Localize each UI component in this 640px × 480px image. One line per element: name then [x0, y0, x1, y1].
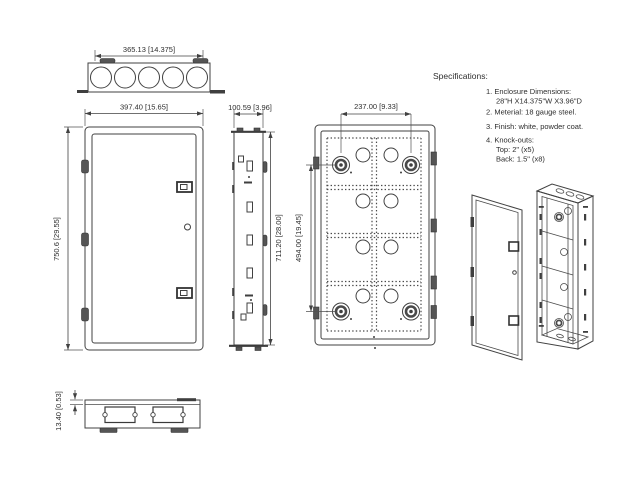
- spec-item-4: 4. Knock-outs:: [486, 136, 534, 145]
- latch: [509, 316, 519, 325]
- side-view: 100.59 [3.96] 711.20 [28.00]: [228, 103, 283, 351]
- hinge-knuckle: [263, 305, 267, 316]
- door-panel: [92, 134, 196, 343]
- hinge-knuckle: [263, 162, 267, 173]
- front-view: 397.40 [15.65] 750.6 [29.55]: [52, 103, 203, 351]
- dim-side-width: 100.59 [3.96]: [228, 103, 272, 112]
- mounting-tab: [193, 59, 208, 64]
- latch: [509, 242, 519, 251]
- spec-item-4c: Back: 1.5" (x8): [496, 155, 545, 164]
- hinge: [82, 308, 89, 321]
- ringed-knockout: [555, 319, 564, 328]
- top-view: 365.13 [14.375]: [77, 45, 225, 94]
- knockout-circle: [115, 67, 136, 88]
- spec-item-1: 1. Enclosure Dimensions:: [486, 87, 571, 96]
- hinge-tab: [431, 276, 437, 289]
- latch: [177, 182, 192, 192]
- dim-side-height: 711.20 [28.00]: [274, 214, 283, 261]
- dim-front-width: 397.40 [15.65]: [120, 103, 168, 112]
- spec-item-2: 2. Meterial: 18 gauge steel.: [486, 108, 576, 117]
- hinge: [471, 267, 475, 277]
- bottom-view: 13.40 [0.53]: [54, 390, 200, 433]
- knockout-circle: [139, 67, 160, 88]
- knockout-circle: [91, 67, 112, 88]
- specifications: Specifications: 1. Enclosure Dimensions:…: [433, 71, 583, 164]
- hinge-tab: [431, 306, 437, 319]
- spec-item-3: 3. Finish: white, powder coat.: [486, 122, 583, 131]
- ringed-knockout: [333, 157, 350, 174]
- hinge-knuckle: [263, 235, 267, 246]
- hinge: [471, 217, 475, 227]
- iso-door: [471, 195, 523, 360]
- ringed-knockout: [403, 303, 420, 320]
- specs-title: Specifications:: [433, 71, 488, 81]
- knockout-circle: [163, 67, 184, 88]
- hinge: [82, 233, 89, 246]
- back-view: 237.00 [9.33] 494.00 [19.45]: [294, 102, 437, 349]
- dim-bottom-lip: 13.40 [0.53]: [54, 391, 63, 431]
- knockout-rect: [153, 407, 183, 423]
- mounting-tab: [171, 428, 188, 433]
- dim-back-knockout-height: 494.00 [19.45]: [294, 214, 303, 262]
- door-hole: [185, 224, 191, 230]
- hinge-tab: [431, 219, 437, 232]
- hinge: [82, 160, 89, 173]
- technical-drawing-canvas: 365.13 [14.375] 397.40 [15.65] 750.6 [29…: [0, 0, 640, 480]
- mounting-tab: [100, 428, 117, 433]
- dim-front-height: 750.6 [29.55]: [52, 217, 61, 261]
- iso-box: [537, 184, 593, 349]
- enclosure-spec-drawing: 365.13 [14.375] 397.40 [15.65] 750.6 [29…: [0, 0, 640, 480]
- ringed-knockout: [555, 213, 564, 222]
- hinge: [471, 316, 475, 326]
- dim-top-width: 365.13 [14.375]: [123, 45, 175, 54]
- knockout-circle: [187, 67, 208, 88]
- ringed-knockout: [333, 303, 350, 320]
- hinge-tab: [431, 152, 437, 165]
- dim-back-knockout-width: 237.00 [9.33]: [354, 102, 398, 111]
- door-hole: [513, 271, 517, 275]
- mounting-tab: [100, 59, 115, 64]
- knockout-rect: [105, 407, 135, 423]
- ringed-knockout: [403, 157, 420, 174]
- mounting-tab: [314, 307, 320, 319]
- spec-item-4b: Top: 2" (x5): [496, 145, 535, 154]
- spec-item-1b: 28"H X14.375"W X3.96"D: [496, 97, 583, 106]
- latch: [177, 288, 192, 298]
- mounting-tab: [314, 157, 320, 169]
